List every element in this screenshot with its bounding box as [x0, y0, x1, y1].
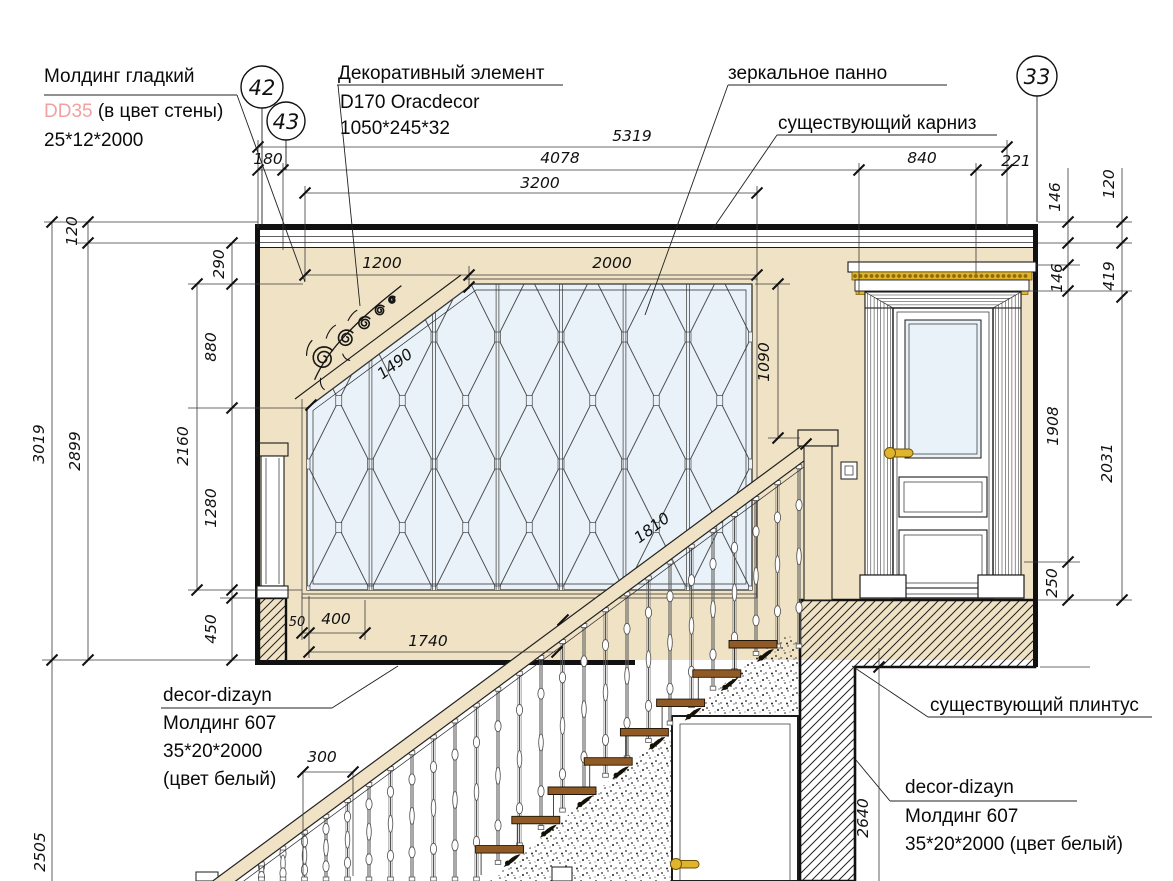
floor-line — [255, 660, 635, 665]
carving-dot — [930, 274, 934, 278]
baluster-bulge — [753, 615, 759, 626]
dim-120-right: 120 — [1100, 169, 1118, 199]
newel-cap — [798, 430, 838, 446]
baluster-bulge — [409, 774, 415, 785]
baluster-bulge — [689, 617, 694, 634]
lower-door-handle-knob — [671, 859, 682, 870]
baluster-foot — [323, 877, 329, 881]
baluster-bulge — [387, 850, 393, 861]
carving-dot — [963, 274, 967, 278]
baluster-bulge — [796, 602, 802, 613]
baluster-bulge — [452, 749, 458, 760]
baluster-bulge — [667, 591, 673, 602]
baluster-bulge — [603, 684, 608, 701]
baluster-foot — [366, 877, 372, 881]
baluster-bulge — [323, 861, 329, 872]
dim-290: 290 — [210, 249, 228, 279]
baluster-foot — [495, 860, 501, 864]
baluster-bulge — [474, 784, 479, 801]
tread-bracket-scroll — [577, 802, 582, 807]
door-plinth-left — [860, 575, 906, 598]
baluster-foot — [431, 877, 437, 881]
dim-1280: 1280 — [202, 488, 220, 528]
dim-450: 450 — [202, 614, 220, 644]
baluster-foot — [603, 773, 609, 777]
carving-dot — [991, 274, 995, 278]
dim-146b: 146 — [1048, 263, 1066, 293]
ceiling-line — [255, 224, 1038, 230]
tread-bracket-scroll — [722, 685, 727, 690]
baluster-bulge — [625, 667, 630, 684]
dim-3019: 3019 — [30, 424, 48, 463]
dim-400: 400 — [321, 610, 351, 628]
dim-2640: 2640 — [854, 798, 872, 838]
tread-bracket-scroll — [505, 861, 510, 866]
baluster-bulge — [560, 717, 565, 734]
dim-221: 221 — [1001, 152, 1031, 170]
baluster-bulge — [796, 500, 802, 511]
stair-tread — [548, 787, 596, 795]
callout-33: 33 — [1024, 65, 1051, 89]
carving-dot — [947, 274, 951, 278]
carving-dot — [908, 274, 912, 278]
baluster-bulge — [754, 567, 759, 584]
baluster-foot — [280, 877, 286, 881]
door-cornice-cap — [848, 262, 1036, 272]
lower-newel-top-2 — [552, 867, 572, 881]
left-pilaster — [257, 443, 288, 598]
baluster-bulge — [431, 799, 436, 816]
baluster-bulge — [559, 769, 565, 780]
baluster-bulge — [301, 864, 307, 875]
door-glass — [905, 320, 981, 458]
dim-419: 419 — [1100, 261, 1118, 291]
baluster-foot — [409, 877, 415, 881]
baluster-foot — [452, 877, 458, 881]
baluster-bulge — [668, 634, 673, 651]
carving-dot — [969, 274, 973, 278]
tread-bracket-scroll — [541, 831, 546, 836]
label-decor-element-3: 1050*245*32 — [340, 118, 450, 139]
baluster-bulge — [473, 737, 479, 748]
stair-tread — [476, 846, 524, 854]
dim-840: 840 — [907, 149, 937, 167]
baluster-bulge — [452, 840, 458, 851]
baluster-bulge — [430, 843, 436, 854]
dim-2000: 2000 — [592, 254, 632, 272]
light-switch — [841, 462, 857, 479]
baluster-bulge — [645, 700, 651, 711]
tread-bracket-scroll — [614, 773, 619, 778]
baluster-bulge — [495, 721, 501, 732]
carving-dot — [952, 274, 956, 278]
stair-tread — [620, 728, 668, 736]
carving-dot — [1007, 274, 1011, 278]
baluster-bulge — [388, 815, 393, 832]
baluster-bulge — [430, 761, 436, 772]
baluster-bulge — [495, 820, 501, 831]
baluster-foot — [753, 651, 759, 655]
label-molding-smooth-3: 25*12*2000 — [44, 130, 143, 151]
label-molding-right-3: 35*20*2000 (цвет белый) — [905, 834, 1123, 855]
label-molding-left-3: 35*20*2000 — [163, 741, 262, 762]
baluster-bulge — [539, 734, 544, 751]
elevation-drawing: 42 43 33 Молдинг гладкий DD35 (в цвет ст… — [0, 0, 1173, 881]
door-assembly — [841, 262, 1036, 598]
carving-dot — [925, 274, 929, 278]
dim-1200: 1200 — [362, 254, 402, 272]
baluster-bulge — [602, 640, 608, 651]
baluster-bulge — [753, 526, 759, 537]
dim-2505: 2505 — [31, 832, 49, 871]
carving-dot — [974, 274, 978, 278]
carving-dot — [914, 274, 918, 278]
baluster-bulge — [366, 799, 372, 810]
label-molding-left-1: decor-dizayn — [163, 685, 272, 706]
label-molding-smooth-1: Молдинг гладкий — [44, 66, 194, 87]
carving-dot — [903, 274, 907, 278]
door-cornice-frieze — [855, 280, 1029, 291]
baluster-bulge — [667, 683, 673, 694]
carving-dot — [936, 274, 940, 278]
baluster-bulge — [774, 512, 780, 523]
carving-dot — [875, 274, 879, 278]
dim-300: 300 — [307, 748, 337, 766]
baluster-foot — [796, 644, 802, 648]
dim-1090: 1090 — [755, 342, 773, 382]
baluster-bulge — [602, 734, 608, 745]
label-existing-cornice: существующий карниз — [778, 113, 976, 134]
baluster-bulge — [710, 649, 716, 660]
carving-dot — [881, 274, 885, 278]
baluster-bulge — [688, 575, 694, 586]
baluster-bulge — [496, 767, 501, 784]
label-molding-left-4: (цвет белый) — [163, 769, 276, 790]
carving-dot — [886, 274, 890, 278]
baluster-bulge — [581, 656, 587, 667]
door-casing-right — [993, 292, 1021, 575]
label-molding-right-1: decor-dizayn — [905, 777, 1014, 798]
baluster-foot — [667, 721, 673, 725]
carving-dot — [864, 274, 868, 278]
carving-dot — [980, 274, 984, 278]
baluster-bulge — [624, 623, 630, 634]
baluster-foot — [345, 877, 351, 881]
door-casing-left — [865, 292, 893, 575]
baluster-bulge — [624, 717, 630, 728]
baluster-bulge — [345, 831, 350, 848]
pilaster-shaft — [261, 456, 284, 586]
baluster-foot — [302, 877, 308, 881]
baluster-bulge — [646, 651, 651, 668]
carving-dot — [1002, 274, 1006, 278]
label-molding-left-2: Молдинг 607 — [163, 713, 276, 734]
tread-bracket-scroll — [650, 743, 655, 748]
label-molding-smooth-2: DD35 (в цвет стены) — [44, 101, 223, 122]
baluster-foot — [474, 877, 480, 881]
baluster-bulge — [366, 854, 372, 865]
baluster-bulge — [323, 823, 329, 834]
carving-dot — [853, 274, 857, 278]
label-mirror-panel: зеркальное панно — [728, 63, 887, 84]
baluster-bulge — [710, 558, 716, 569]
dim-4078: 4078 — [540, 149, 580, 167]
label-molding-right-2: Молдинг 607 — [905, 806, 1018, 827]
carving-dot — [1013, 274, 1017, 278]
wall-section-hatch-left — [259, 598, 286, 662]
stair-tread — [729, 641, 777, 649]
baluster-bulge — [797, 548, 802, 565]
carving-dot — [892, 274, 896, 278]
lower-door — [672, 716, 798, 881]
carving-dot — [996, 274, 1000, 278]
carving-dot — [870, 274, 874, 278]
carving-dot — [985, 274, 989, 278]
label-existing-plinth: существующий плинтус — [930, 695, 1139, 716]
baluster-bulge — [409, 847, 415, 858]
dim-250: 250 — [1043, 568, 1061, 598]
baluster-foot — [560, 808, 566, 812]
dim-3200: 3200 — [520, 174, 560, 192]
baluster-foot — [538, 826, 544, 830]
dim-2160: 2160 — [174, 426, 192, 466]
baluster-bulge — [517, 751, 522, 768]
callout-43: 43 — [273, 110, 300, 134]
carving-dot — [919, 274, 923, 278]
carving-dot — [958, 274, 962, 278]
baluster-bulge — [731, 542, 737, 553]
stair-tread — [657, 699, 705, 707]
baluster-bulge — [774, 606, 780, 617]
stair-tread — [512, 816, 560, 824]
dim-1740: 1740 — [408, 632, 448, 650]
newel-shaft — [804, 446, 832, 600]
carving-dot — [1018, 274, 1022, 278]
baluster-foot — [646, 738, 652, 742]
carving-dot — [897, 274, 901, 278]
dim-880: 880 — [202, 332, 220, 362]
baluster-bulge — [559, 672, 565, 683]
baluster-bulge — [387, 786, 393, 797]
baluster-bulge — [410, 807, 415, 824]
dim-1908: 1908 — [1044, 406, 1062, 446]
baluster-bulge — [538, 688, 544, 699]
carving-dot — [1024, 274, 1028, 278]
baluster-bulge — [775, 556, 780, 573]
baluster-bulge — [516, 803, 522, 814]
baluster-bulge — [453, 791, 458, 808]
pilaster-base — [257, 586, 288, 598]
stair-tread — [693, 670, 741, 678]
carving-dot — [941, 274, 945, 278]
baluster-foot — [710, 686, 716, 690]
stair-tread — [584, 758, 632, 766]
label-decor-element-1: Декоративный элемент — [338, 63, 545, 84]
dim-5319: 5319 — [612, 127, 651, 145]
baluster-bulge — [367, 823, 372, 840]
door-handle-knob — [885, 448, 896, 459]
drawing-canvas: 42 43 33 Молдинг гладкий DD35 (в цвет ст… — [0, 0, 1173, 881]
baluster-bulge — [516, 704, 522, 715]
tread-bracket-scroll — [758, 655, 763, 660]
dim-50: 50 — [289, 615, 306, 630]
baluster-bulge — [582, 701, 587, 718]
baluster-bulge — [732, 584, 737, 601]
baluster-bulge — [645, 607, 651, 618]
baluster-foot — [259, 877, 265, 881]
dim-120-left: 120 — [63, 216, 81, 246]
tread-bracket-scroll — [686, 714, 691, 719]
dim-2899: 2899 — [66, 431, 84, 470]
label-decor-element-2: D170 Oracdecor — [340, 92, 480, 113]
dim-146a: 146 — [1046, 182, 1064, 212]
door-plinth-right — [978, 575, 1024, 598]
baluster-foot — [388, 877, 394, 881]
baluster-bulge — [711, 601, 716, 618]
dim-180: 180 — [253, 150, 283, 168]
callout-42: 42 — [249, 76, 276, 100]
baluster-bulge — [344, 857, 350, 868]
baluster-bulge — [344, 811, 350, 822]
baluster-bulge — [324, 839, 329, 856]
dim-2031: 2031 — [1098, 443, 1116, 482]
baluster-bulge — [538, 786, 544, 797]
